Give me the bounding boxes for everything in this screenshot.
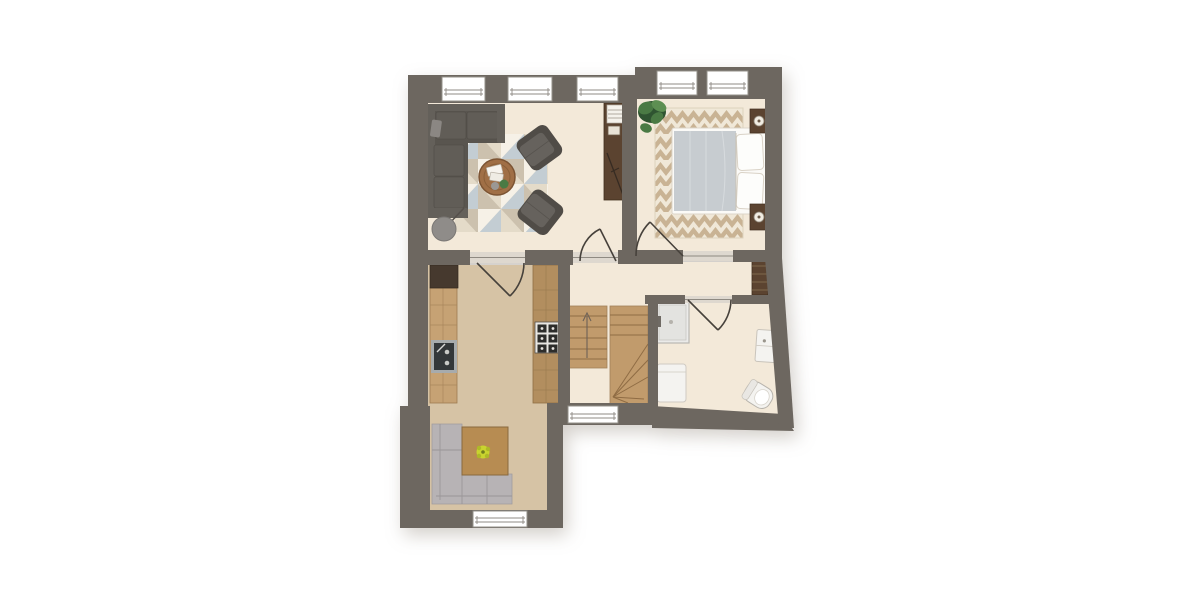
floor-plan-image: [0, 0, 1200, 600]
dining-nook: [432, 424, 512, 504]
wall-right-upper: [765, 67, 782, 262]
wall-mid-seg1: [408, 250, 470, 265]
table-bowl: [491, 182, 499, 190]
winder-flight: [610, 306, 648, 406]
wall-left-nook: [400, 406, 430, 528]
wall-stairs-bath: [648, 300, 658, 412]
window: [508, 77, 552, 101]
window: [473, 511, 527, 527]
window: [442, 77, 485, 101]
table-plant: [500, 180, 509, 189]
floor-plan-canvas: [0, 0, 1200, 600]
flower-centerpiece: [477, 446, 491, 459]
window: [707, 71, 748, 95]
tall-cabinet: [430, 265, 458, 288]
straight-flight: [567, 306, 607, 368]
wall-left: [408, 75, 428, 415]
round-coffee-table: [479, 159, 515, 195]
console-frame: [608, 126, 620, 135]
pillow: [736, 133, 764, 170]
wall-bath-top-left: [645, 295, 685, 304]
double-bed: [672, 128, 766, 214]
window: [568, 406, 618, 423]
wall-bath-top-right: [732, 295, 770, 304]
wall-mid-seg4: [733, 250, 767, 262]
cooktop: [535, 322, 561, 353]
window: [657, 71, 697, 95]
wall-mid-seg2: [525, 250, 573, 265]
sink: [431, 340, 457, 373]
wall-divider-living-bedroom: [622, 75, 637, 255]
shower-drain: [669, 320, 673, 324]
wall-kitchen-stairs: [558, 263, 570, 407]
washing-machine: [657, 364, 686, 402]
window: [577, 77, 618, 101]
shower: [656, 302, 689, 343]
